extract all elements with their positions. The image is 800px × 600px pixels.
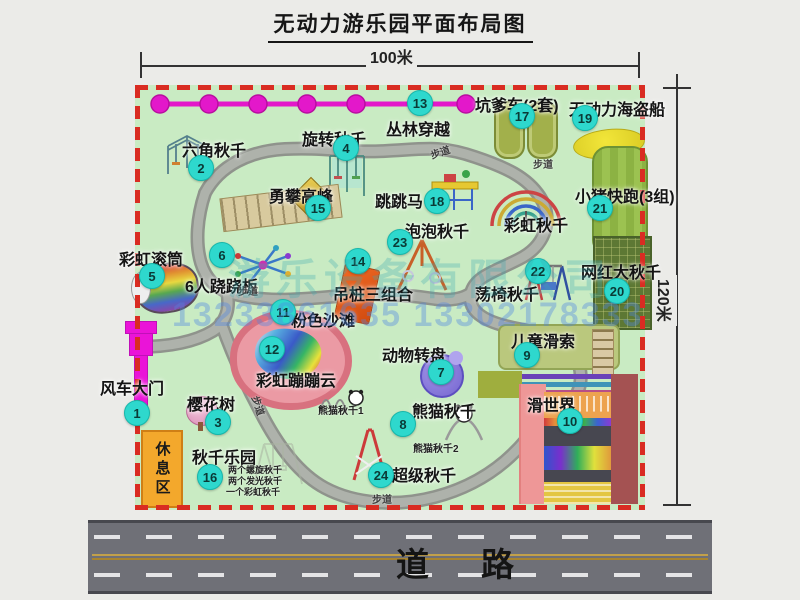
attraction-badge-3: 3 (205, 409, 231, 435)
cherry-tree-trunk (198, 422, 203, 431)
attraction-label-22: 荡椅秋千 (475, 281, 539, 305)
attraction-label-1: 风车大门 (100, 375, 164, 399)
dimension-tick-right-bottom (663, 504, 691, 506)
attraction-badge-19: 19 (572, 105, 598, 131)
attraction-badge-10: 10 (557, 408, 583, 434)
small-label-1: 熊猫秋千1 (318, 402, 364, 417)
dimension-tick-top-left (140, 52, 142, 78)
page-title: 无动力游乐园平面布局图 (0, 8, 800, 43)
attraction-badge-9: 9 (514, 342, 540, 368)
road-label: 道路 (396, 538, 566, 586)
attraction-badge-23: 23 (387, 229, 413, 255)
attraction-label-13: 丛林穿越 (386, 116, 450, 140)
windmill-gate-block (129, 333, 153, 356)
attraction-badge-7: 7 (428, 359, 454, 385)
attraction-badge-13: 13 (407, 90, 433, 116)
attraction-badge-8: 8 (390, 411, 416, 437)
attraction-badge-5: 5 (139, 263, 165, 289)
dimension-width-label: 100米 (366, 44, 417, 68)
attraction-label-18: 跳跳马 (375, 188, 423, 212)
dimension-tick-right-top (663, 87, 691, 89)
small-label-5: 一个彩虹秋千 (226, 485, 280, 498)
attraction-badge-21: 21 (587, 195, 613, 221)
attraction-badge-4: 4 (333, 135, 359, 161)
attraction-label-14: 吊桩三组合 (333, 281, 413, 305)
attraction-badge-22: 22 (525, 258, 551, 284)
attraction-label-23: 泡泡秋千 (405, 218, 469, 242)
attraction-badge-14: 14 (345, 248, 371, 274)
small-label-2: 熊猫秋千2 (413, 440, 459, 455)
road: 道路 (88, 520, 712, 594)
footpath-label-3: 步道 (238, 283, 258, 298)
slide-lane-rainbow-wide (544, 446, 611, 470)
attraction-badge-20: 20 (604, 278, 630, 304)
attraction-label-8: 熊猫秋千 (412, 398, 476, 422)
page-title-text: 无动力游乐园平面布局图 (268, 8, 533, 43)
slide-world-right-tower (611, 374, 638, 504)
map-border-left (135, 85, 140, 510)
attraction-label-12: 彩虹蹦蹦云 (256, 367, 336, 391)
slide-lane-wavy (544, 482, 611, 504)
slide-world-rail-1 (522, 374, 614, 379)
attraction-label-rainbow-swing: 彩虹秋千 (504, 212, 568, 236)
map-border-right (640, 85, 645, 510)
slide-world-platform (478, 371, 522, 398)
attraction-badge-17: 17 (509, 103, 535, 129)
map-border-top (135, 85, 645, 90)
attraction-badge-1: 1 (124, 400, 150, 426)
attraction-label-11: 粉色沙滩 (291, 307, 355, 331)
attraction-badge-6: 6 (209, 242, 235, 268)
attraction-badge-24: 24 (368, 462, 394, 488)
kids-zipline-tower (592, 329, 614, 375)
footpath-label-2: 步道 (533, 156, 553, 171)
attraction-badge-2: 2 (188, 155, 214, 181)
dimension-tick-top-right (638, 52, 640, 78)
attraction-badge-12: 12 (259, 336, 285, 362)
attraction-badge-11: 11 (270, 299, 296, 325)
rest-area-label: 休息区 (152, 441, 173, 498)
rest-area: 休息区 (141, 430, 183, 508)
attraction-badge-16: 16 (197, 464, 223, 490)
slide-lane-dark-2 (544, 470, 611, 482)
attraction-label-24: 超级秋千 (392, 462, 456, 486)
attraction-badge-15: 15 (305, 195, 331, 221)
footpath-label-5: 步道 (372, 491, 392, 506)
attraction-badge-18: 18 (424, 188, 450, 214)
screenshot-stage: 无动力游乐园平面布局图 100米 120米 (0, 0, 800, 600)
